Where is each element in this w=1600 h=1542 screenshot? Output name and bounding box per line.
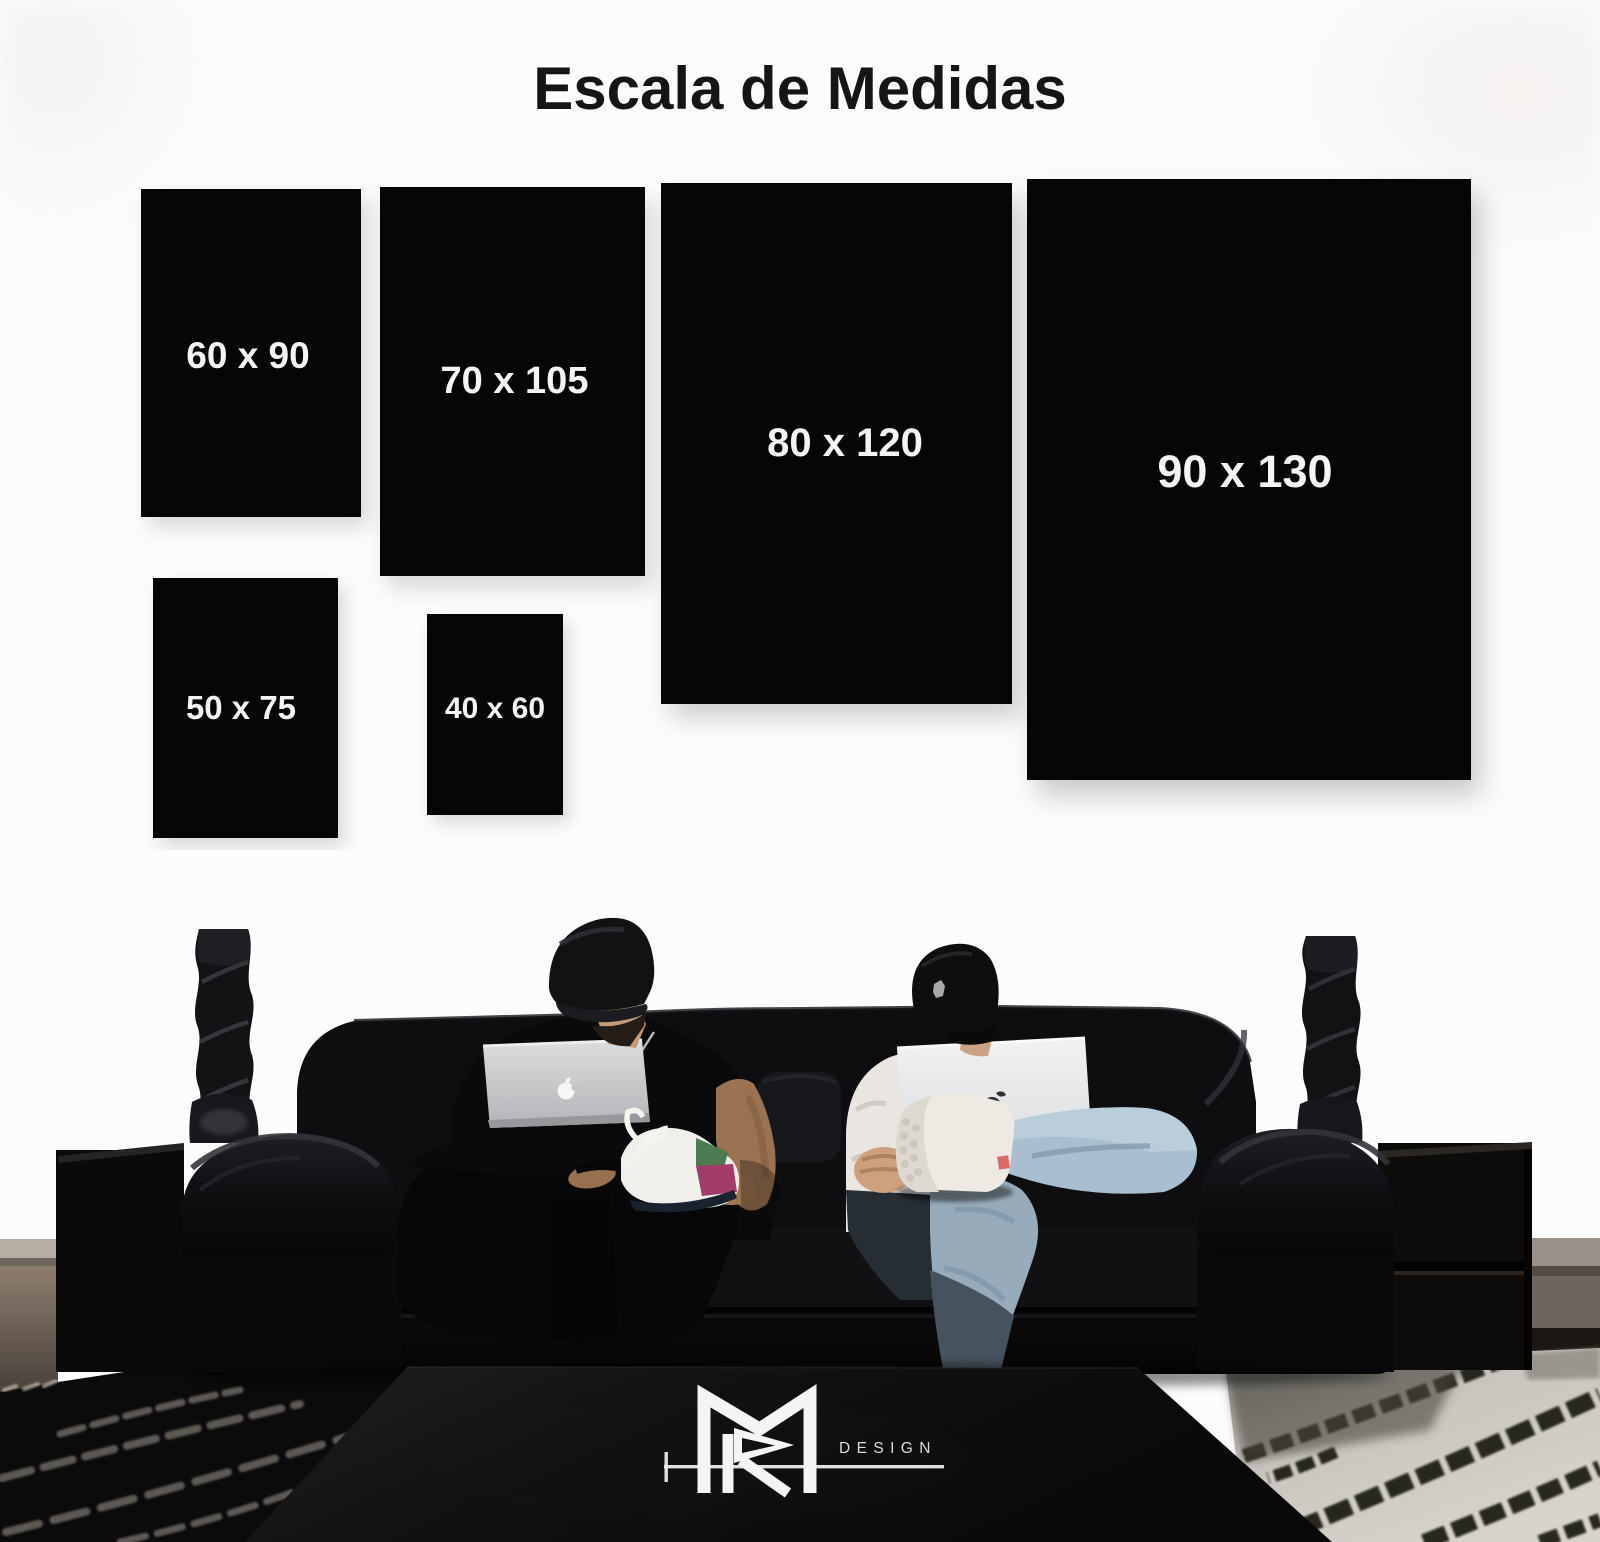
svg-text:DESIGN: DESIGN [839,1440,937,1457]
